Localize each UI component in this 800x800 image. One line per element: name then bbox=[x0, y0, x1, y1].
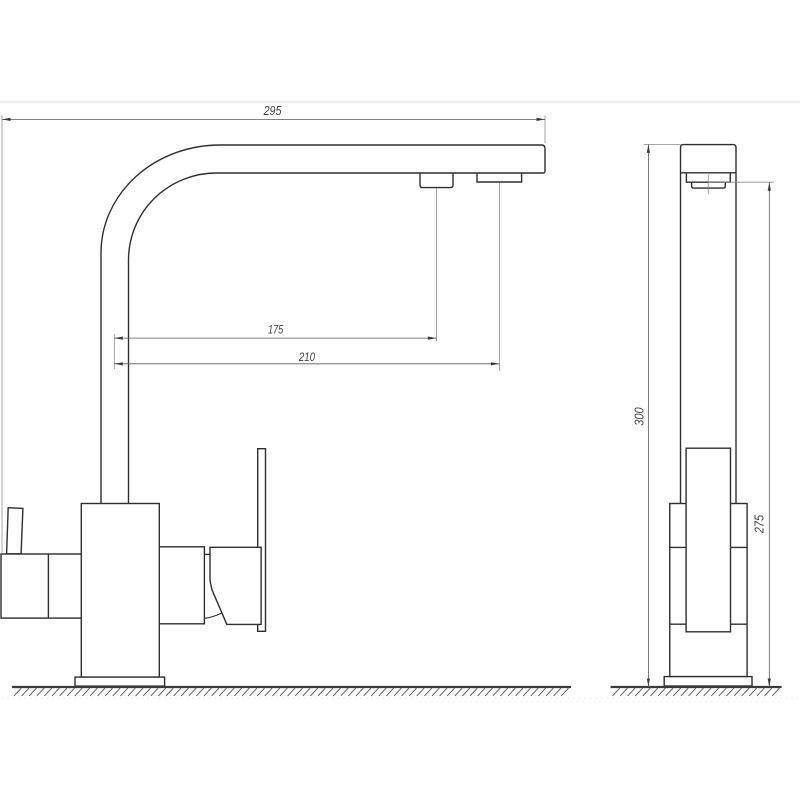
svg-text:300: 300 bbox=[631, 407, 646, 426]
svg-text:275: 275 bbox=[752, 514, 767, 534]
svg-text:295: 295 bbox=[263, 103, 282, 118]
svg-text:210: 210 bbox=[298, 350, 315, 364]
svg-text:175: 175 bbox=[268, 322, 283, 336]
